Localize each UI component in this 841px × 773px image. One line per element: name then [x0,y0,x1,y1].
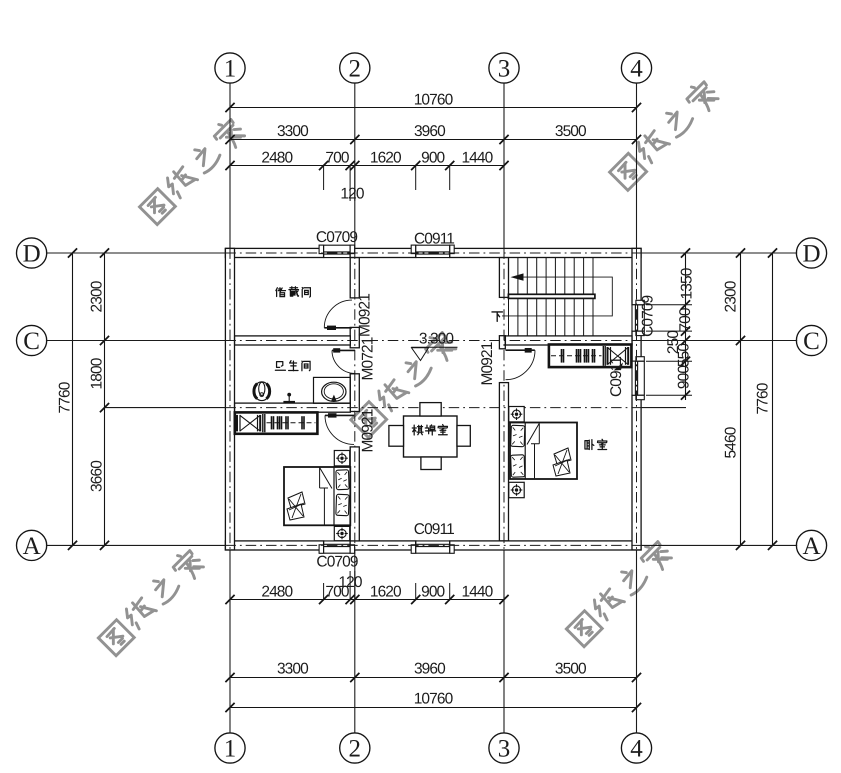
svg-text:3.300: 3.300 [419,331,455,348]
svg-text:C0709: C0709 [640,295,657,336]
svg-text:5460: 5460 [723,426,740,458]
svg-text:4: 4 [630,56,643,83]
svg-text:900: 900 [676,365,693,389]
svg-text:M0921: M0921 [479,342,496,385]
svg-text:C0911: C0911 [414,521,454,538]
svg-text:3: 3 [498,736,511,763]
svg-text:120: 120 [338,574,362,591]
svg-text:2: 2 [349,56,362,83]
svg-text:C: C [803,328,820,355]
svg-text:C0911: C0911 [608,357,625,397]
svg-text:120: 120 [340,185,364,202]
svg-text:1440: 1440 [461,583,493,600]
svg-text:1800: 1800 [89,357,106,389]
svg-text:M0721: M0721 [360,337,377,380]
svg-text:3660: 3660 [89,460,106,492]
svg-text:C0911: C0911 [414,230,454,247]
svg-text:3500: 3500 [555,661,587,678]
svg-text:1440: 1440 [461,149,493,166]
svg-text:2480: 2480 [261,149,293,166]
svg-text:2: 2 [349,736,362,763]
svg-text:3300: 3300 [277,123,309,140]
svg-text:3500: 3500 [555,123,587,140]
svg-text:C0709: C0709 [316,229,357,246]
svg-text:7760: 7760 [57,381,74,413]
svg-text:900: 900 [421,583,445,600]
svg-text:3: 3 [498,56,511,83]
svg-text:10760: 10760 [414,691,454,708]
svg-text:7760: 7760 [755,382,772,414]
svg-text:550: 550 [676,343,693,367]
svg-text:3960: 3960 [414,123,446,140]
svg-text:1620: 1620 [370,583,402,600]
svg-text:C0709: C0709 [316,554,357,571]
svg-text:D: D [802,241,820,268]
svg-text:M0921: M0921 [357,294,374,337]
svg-text:M0921: M0921 [360,409,377,452]
svg-text:A: A [802,533,820,560]
svg-text:C: C [23,328,40,355]
svg-text:2300: 2300 [89,280,106,312]
svg-text:900: 900 [421,149,445,166]
svg-text:1620: 1620 [370,149,402,166]
svg-text:A: A [23,533,41,560]
svg-text:1350: 1350 [679,267,696,299]
svg-text:3300: 3300 [277,661,309,678]
svg-text:10760: 10760 [414,91,454,108]
svg-text:4: 4 [630,736,643,763]
svg-text:700: 700 [677,307,694,331]
svg-text:D: D [23,241,41,268]
svg-text:1: 1 [224,56,237,83]
svg-text:1: 1 [224,736,237,763]
svg-text:2300: 2300 [723,280,740,312]
svg-text:2480: 2480 [261,583,293,600]
svg-text:700: 700 [325,149,349,166]
svg-text:3960: 3960 [414,661,446,678]
